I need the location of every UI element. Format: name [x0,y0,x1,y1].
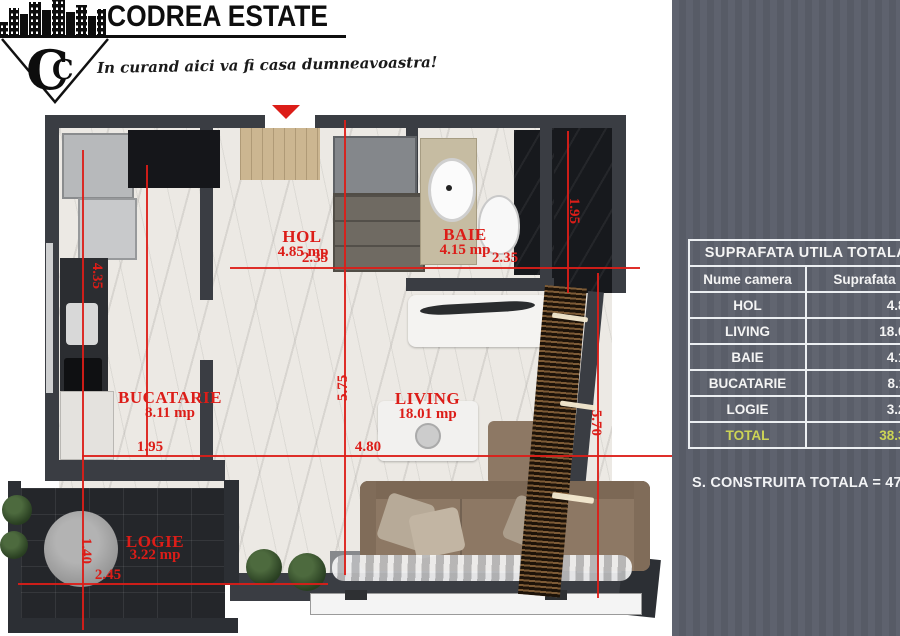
wall [45,460,225,481]
table-title-row: SUPRAFATA UTILA TOTALA [689,240,900,266]
dim-kitchen-height: 4.35 [88,256,104,296]
dim-kitchen-width: 1.95 [120,440,180,456]
sink-drain [446,185,452,191]
row-name: LOGIE [689,396,806,422]
total-value: 38.34 [806,422,900,448]
fridge [62,133,134,199]
dim-line [230,267,640,269]
brand-name: CODREA ESTATE [107,0,328,34]
kitchen-cabinet-low [60,391,114,460]
row-value: 8.11 [806,370,900,396]
dim-dressing-height: 1.95 [565,191,581,231]
brand-header: CODREA ESTATE C C In curand aici va fi c… [0,0,360,110]
dim-hol-width: 2.35 [285,251,345,267]
window-mullion [345,590,367,600]
row-value: 4.15 [806,344,900,370]
flyer: { "brand": { "name": "CODREA ESTATE", "m… [0,0,900,636]
row-value: 18.01 [806,318,900,344]
entry-floor [240,128,320,180]
row-name: BAIE [689,344,806,370]
rug [332,555,632,581]
table-row: BAIE 4.15 [689,344,900,370]
column-header-name: Nume camera [689,266,806,292]
areas-table: SUPRAFATA UTILA TOTALA Nume camera Supra… [688,239,900,449]
summary-panel: SUPRAFATA UTILA TOTALA Nume camera Supra… [672,0,900,636]
dim-logie-depth: 1.40 [77,531,93,571]
table-header-row: Nume camera Suprafata [689,266,900,292]
dim-baie-width: 2.35 [475,251,535,267]
kitchen-window [46,243,53,393]
monogram-letter-inner: C [52,55,74,86]
marble-counter-corner [128,130,220,188]
entrance-marker-icon [272,105,300,119]
plant [0,531,28,559]
plant [288,553,326,591]
dim-terrace-height: 5.70 [587,403,603,443]
room-area-logie: 3.22 mp [117,548,193,564]
room-area-bucatarie: 8.11 mp [130,406,210,422]
brand-tagline: In curand aici va fi casa dumneavoastra! [97,53,438,77]
row-name: BUCATARIE [689,370,806,396]
dim-line [344,120,346,575]
plant [246,549,282,585]
wall [8,618,238,633]
table-row: LOGIE 3.22 [689,396,900,422]
wall [315,115,625,128]
table-row: HOL 4.85 [689,292,900,318]
row-name: HOL [689,292,806,318]
skyline-icon [0,0,110,38]
row-name: LIVING [689,318,806,344]
row-value: 4.85 [806,292,900,318]
dim-logie-width: 2.45 [78,568,138,584]
desk-basin [415,423,441,449]
dim-line [18,583,328,585]
bath-sink [428,158,476,222]
table-total-row: TOTAL 38.34 [689,422,900,448]
kitchen-cabinet [78,198,137,260]
table-title: SUPRAFATA UTILA TOTALA [689,240,900,266]
wall [406,278,554,291]
column-header-area: Suprafata [806,266,900,292]
total-label: TOTAL [689,422,806,448]
built-area-total: S. CONSTRUITA TOTALA = 47.0 [692,475,900,491]
sofa-arm [634,481,650,571]
wall [45,115,265,128]
wall [224,480,239,585]
floorplan: HOL 4.85 mp BAIE 4.15 mp BUCATARIE 8.11 … [0,103,676,636]
plant [2,495,32,525]
dim-living-width: 4.80 [338,440,398,456]
dim-living-height: 5.75 [336,368,352,408]
room-area-living: 18.01 mp [380,407,475,423]
row-value: 3.22 [806,396,900,422]
table-row: BUCATARIE 8.11 [689,370,900,396]
table-row: LIVING 18.01 [689,318,900,344]
